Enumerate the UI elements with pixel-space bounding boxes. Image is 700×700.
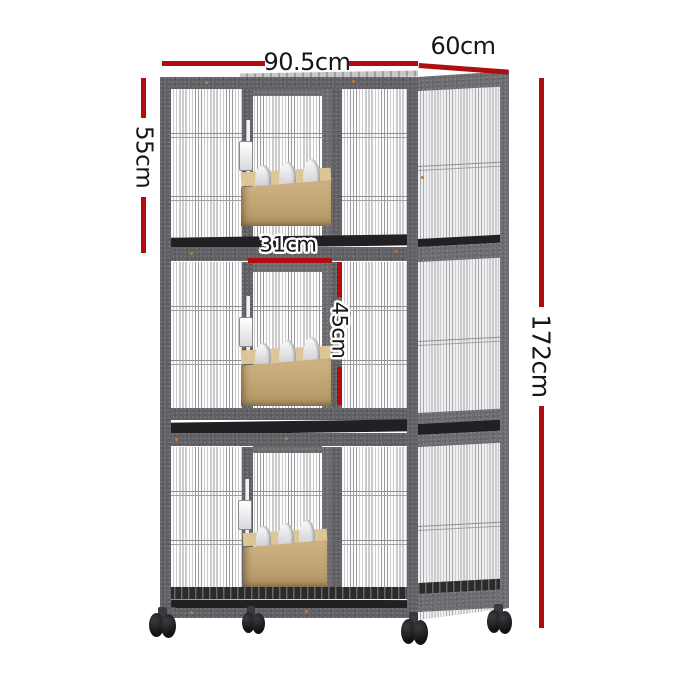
tier2-door-latch[interactable]	[239, 317, 253, 347]
tier2-cross-wire	[171, 306, 407, 311]
caster-wheel	[161, 614, 176, 638]
dimension-line	[337, 262, 342, 297]
tier1-feeder-box	[241, 180, 331, 226]
tier3-mid-post	[331, 447, 342, 588]
dimension-line	[141, 197, 146, 253]
dimension-label-front-width: 90.5cm	[263, 50, 350, 74]
dimension-label-depth: 60cm	[430, 34, 495, 58]
screw-dot	[305, 610, 308, 613]
dimension-line	[539, 78, 544, 307]
dimension-line	[349, 61, 418, 66]
divider-rail-2a	[160, 408, 418, 420]
tier3-feeder-box	[243, 540, 327, 587]
tier1-mid-post	[331, 89, 342, 237]
dimension-line	[162, 61, 265, 66]
tier2-feeder-bowl	[255, 343, 271, 365]
product-dimension-image: 90.5cm 60cm 55cm 31cm 45cm 172cm	[0, 0, 700, 700]
dimension-line	[539, 406, 544, 628]
dimension-line	[419, 63, 509, 75]
cage-right-post	[407, 77, 418, 618]
cage-side-face	[418, 71, 509, 620]
cage-back-post	[500, 71, 509, 616]
floor-grate	[167, 587, 407, 599]
screw-dot	[352, 80, 355, 83]
caster-wheel	[498, 611, 512, 634]
dimension-line	[141, 78, 146, 118]
tier3-door-latch[interactable]	[238, 500, 252, 530]
screw-dot	[205, 81, 208, 84]
dimension-line	[337, 367, 342, 405]
tier1-cross-wire	[171, 133, 407, 138]
caster-wheel	[252, 613, 265, 634]
dimension-label-door-width: 31cm	[260, 235, 317, 256]
tier2-door-top-bar	[253, 263, 322, 272]
divider-rail-2b	[160, 433, 418, 446]
tier3-feeder-bowl	[256, 526, 271, 547]
screw-dot	[190, 611, 193, 614]
screw-dot	[190, 252, 193, 255]
cage-left-post	[160, 77, 171, 618]
dimension-label-total-height: 172cm	[529, 314, 554, 397]
dimension-label-tier-height: 55cm	[132, 126, 155, 188]
screw-dot	[421, 176, 424, 179]
dimension-label-door-height: 45cm	[329, 302, 350, 359]
bottom-rail	[160, 608, 418, 618]
screw-dot	[285, 437, 288, 440]
tier2-feeder-box	[241, 358, 331, 406]
tier1-door-latch[interactable]	[239, 141, 253, 171]
tier3-cross-wire	[171, 491, 407, 496]
screw-dot	[175, 438, 178, 441]
dimension-line	[248, 258, 332, 263]
cage-top-rail	[160, 77, 418, 89]
screw-dot	[395, 250, 398, 253]
side-wire-panel	[418, 71, 509, 620]
caster-wheel	[413, 620, 428, 645]
tier1-feeder-bowl	[255, 165, 271, 187]
